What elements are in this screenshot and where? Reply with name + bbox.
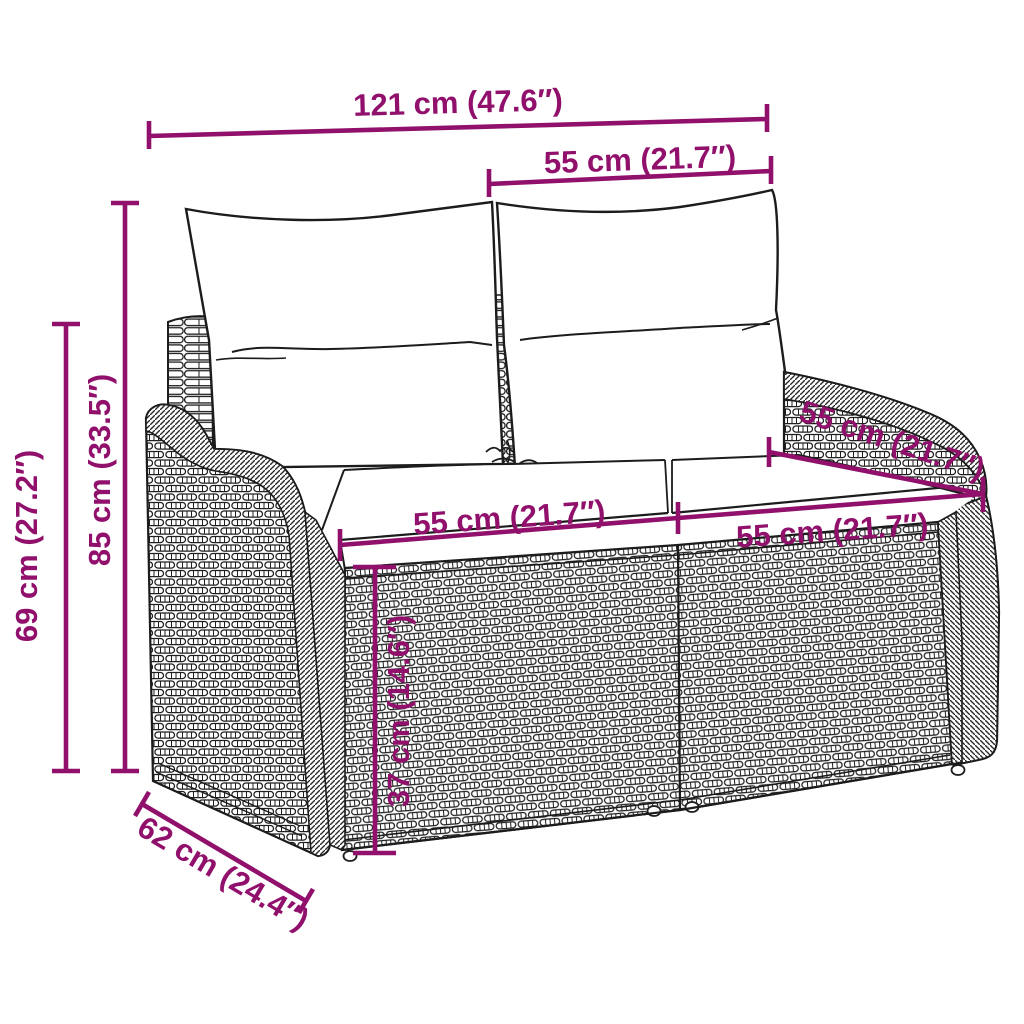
- svg-text:85 cm (33.5″): 85 cm (33.5″): [82, 374, 117, 566]
- svg-text:121 cm (47.6″): 121 cm (47.6″): [353, 82, 563, 123]
- svg-text:37 cm (14.6″): 37 cm (14.6″): [381, 615, 416, 807]
- svg-text:55 cm (21.7″): 55 cm (21.7″): [543, 139, 736, 181]
- svg-text:69 cm (27.2″): 69 cm (27.2″): [9, 450, 44, 642]
